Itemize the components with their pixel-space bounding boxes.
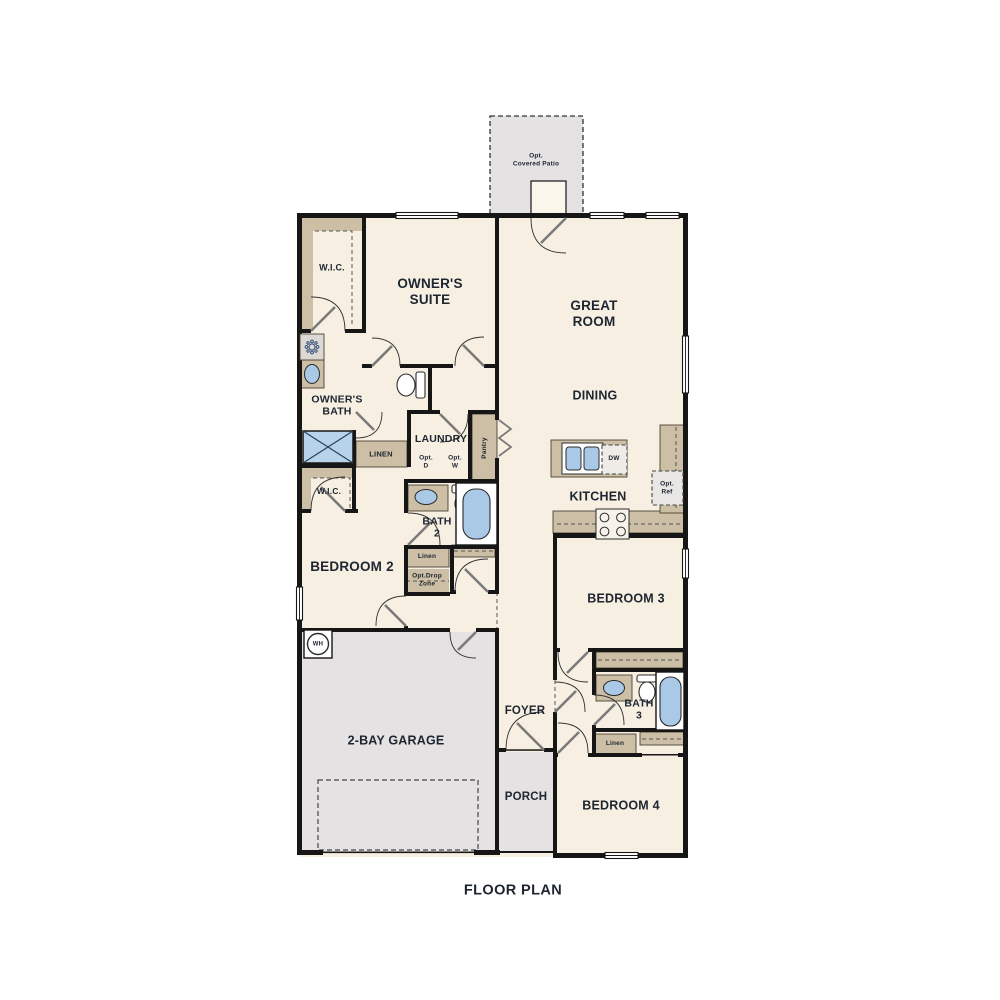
sink-icon [604,681,625,696]
kitchen-double-sink-icon [562,443,603,474]
label-opt-washer: Opt. W [448,454,462,469]
bathtub-icon [656,672,684,730]
room-label-bedroom3: BEDROOM 3 [587,592,665,607]
label-opt-ref: Opt. Ref [660,480,674,495]
range-burners-icon [596,509,629,539]
room-label-wic2: W.I.C. [317,486,341,496]
room-label-wic1: W.I.C. [319,263,345,274]
room-label-bath2: BATH 2 [422,516,451,541]
shower-stall [300,334,324,360]
sink-icon [305,365,320,384]
room-label-laundry: LAUNDRY [415,433,467,445]
kitchen-counter-east [660,425,684,473]
patio-door-vestibule [531,181,566,217]
page-title: FLOOR PLAN [464,882,562,899]
room-label-dining: DINING [573,389,618,404]
floor-plan-page: Opt. Covered Patio W.I.C. OWNER'S SUITE … [0,0,1000,1000]
label-water-heater: WH [313,641,323,648]
room-label-owners-bath: OWNER'S BATH [311,394,362,419]
room-label-great-room: GREAT ROOM [570,298,617,330]
room-label-pantry: Pantry [481,437,489,458]
room-label-garage: 2-BAY GARAGE [348,734,445,749]
wic1-shelf-left [302,231,313,330]
label-opt-dryer: Opt. D [419,454,433,469]
room-label-porch: PORCH [505,791,548,805]
sink-icon [415,490,437,505]
toilet-icon [397,372,425,398]
wic1-shelf-top [302,218,362,231]
label-linen-hall: LINEN [369,451,393,460]
label-opt-drop-zone: Opt.Drop Zone [412,572,442,587]
wic2-shelf-top [302,467,354,478]
room-label-patio: Opt. Covered Patio [513,152,559,167]
room-label-kitchen: KITCHEN [570,490,627,505]
shower-x-icon [303,431,353,463]
wic2-shelf-left [302,478,311,511]
bathtub-icon [456,483,497,545]
label-dishwasher: DW [608,455,619,463]
room-label-foyer: FOYER [505,705,546,719]
room-label-bath3: BATH 3 [624,698,653,723]
floor-plan-drawing [0,0,1000,1000]
room-label-owners-suite: OWNER'S SUITE [397,276,462,308]
room-label-bedroom2: BEDROOM 2 [310,559,394,575]
room-label-bedroom4: BEDROOM 4 [582,799,660,814]
label-linen2: Linen [418,553,436,561]
label-linen3: Linen [606,740,624,748]
